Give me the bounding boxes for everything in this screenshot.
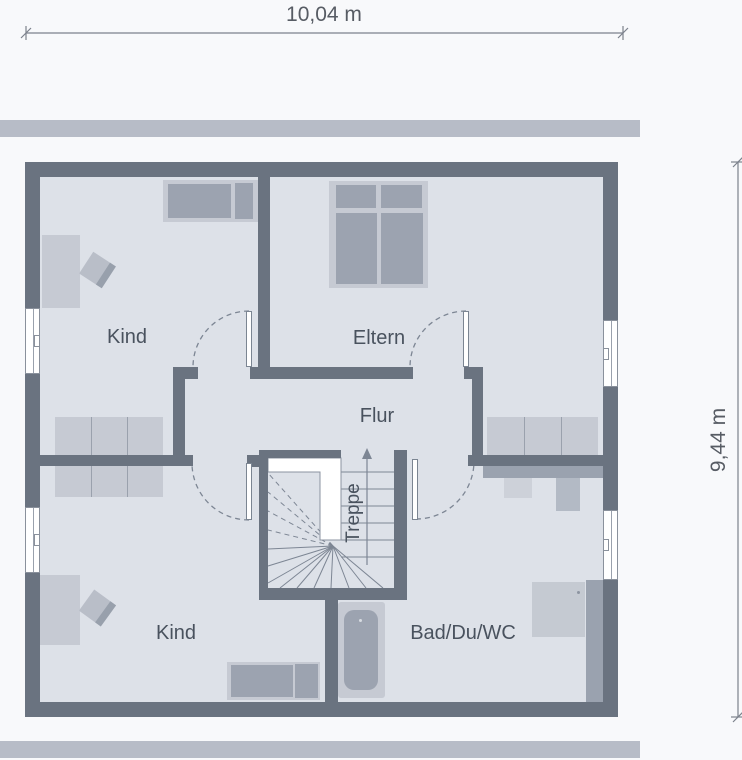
wall-segment xyxy=(325,597,338,702)
door-leaf-bad xyxy=(412,459,418,520)
top-dimension-line xyxy=(21,26,628,40)
window xyxy=(603,320,618,387)
wardrobe xyxy=(487,417,598,455)
pillow xyxy=(235,183,253,219)
pillow xyxy=(381,185,422,208)
right-dimension-line xyxy=(731,157,742,722)
wardrobe xyxy=(55,463,163,497)
pillow xyxy=(295,664,318,698)
toilet xyxy=(556,478,580,511)
bed-single xyxy=(227,662,320,700)
roof-edge-top xyxy=(0,120,640,137)
wall-segment xyxy=(173,367,185,456)
desk xyxy=(42,235,80,308)
wardrobe xyxy=(55,417,163,456)
room-label-flur: Flur xyxy=(327,405,427,427)
room-label-treppe: Treppe xyxy=(343,453,365,573)
floor-plan-page: 10,04 m xyxy=(0,0,742,760)
door-leaf-eltern xyxy=(463,311,469,367)
wall-segment xyxy=(250,367,413,379)
washbasin xyxy=(504,478,532,498)
window xyxy=(25,507,40,573)
mattress xyxy=(381,213,423,284)
room-label-eltern: Eltern xyxy=(319,327,439,349)
wall-segment xyxy=(468,455,603,466)
top-dimension-label: 10,04 m xyxy=(224,3,424,27)
right-dimension-label: 9,44 m xyxy=(707,360,731,520)
window xyxy=(603,510,618,580)
door-leaf-kind-bottom xyxy=(246,463,252,520)
mattress xyxy=(336,213,377,284)
desk xyxy=(40,575,80,645)
room-label-kind-top: Kind xyxy=(77,326,177,348)
knee-wall-band xyxy=(483,466,603,478)
mattress xyxy=(168,184,231,218)
door-leaf-kind-top xyxy=(246,311,252,367)
stairwell-wall xyxy=(259,450,341,458)
mattress xyxy=(231,665,293,697)
wall-segment xyxy=(472,367,483,456)
wall-segment xyxy=(25,455,193,466)
bed-double xyxy=(329,181,428,288)
room-label-bad: Bad/Du/WC xyxy=(383,622,543,644)
bathtub-basin xyxy=(344,610,378,690)
roof-edge-bottom xyxy=(0,741,640,758)
stairwell-wall xyxy=(394,450,407,600)
wall-segment xyxy=(258,177,270,367)
window xyxy=(25,308,40,374)
bed-single xyxy=(163,180,258,222)
stairwell-wall xyxy=(259,450,268,600)
bathtub xyxy=(338,602,385,698)
pillow xyxy=(336,185,376,208)
knee-wall-band xyxy=(586,580,603,702)
room-label-kind-bottom: Kind xyxy=(126,622,226,644)
